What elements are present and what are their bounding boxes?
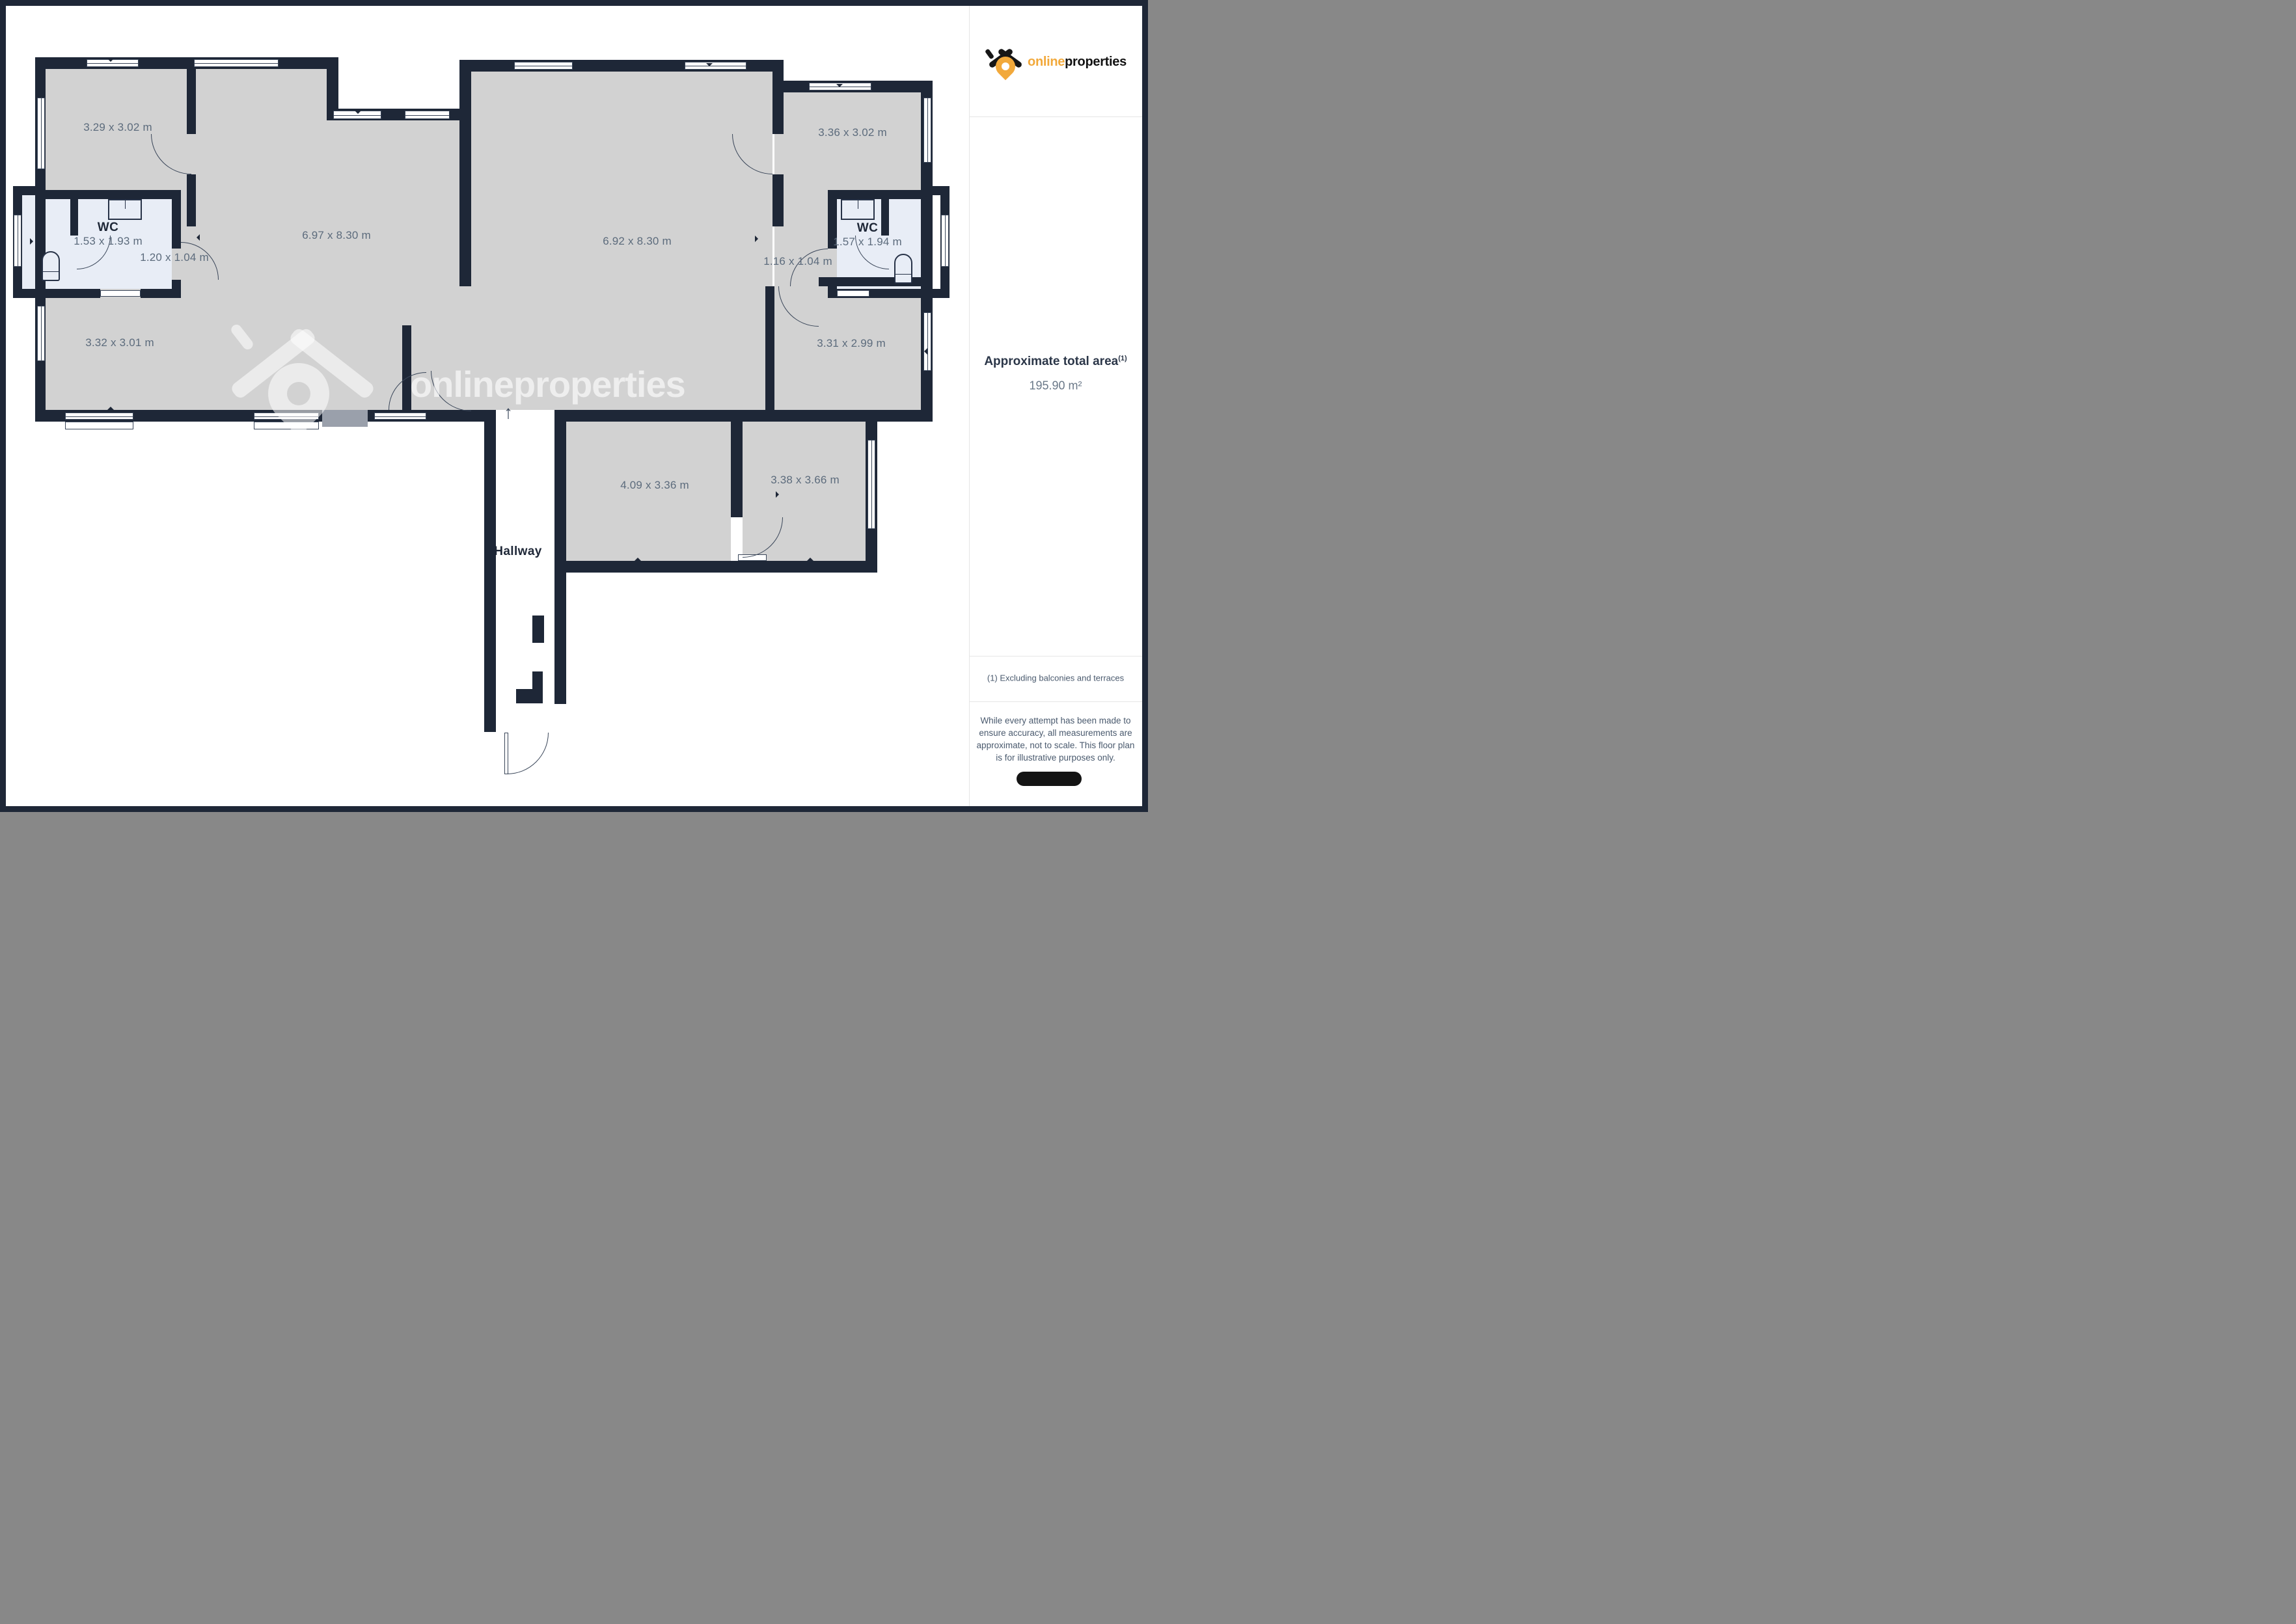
wall-segment <box>187 69 196 134</box>
room-label-bottom-right: 3.31 x 2.99 m <box>817 337 886 350</box>
room-label-bottom-center: 4.09 x 3.36 m <box>620 479 689 492</box>
total-area-title: Approximate total area(1) <box>984 355 1127 369</box>
redacted-brand-pill <box>1017 772 1082 786</box>
sidebar-divider <box>969 656 1142 656</box>
sidebar-divider-vertical <box>969 6 970 806</box>
dimension-arrow <box>776 491 779 498</box>
brand-logo-text: onlineproperties <box>1028 55 1127 70</box>
wall-segment <box>731 422 743 517</box>
window <box>868 440 875 529</box>
wall-segment <box>765 286 774 422</box>
room-label-living-right: 6.92 x 8.30 m <box>603 235 672 248</box>
dimension-arrow <box>107 59 114 62</box>
wall-segment <box>484 410 496 732</box>
dimension-arrow <box>924 195 927 202</box>
room-label-lobby-right: 1.16 x 1.04 m <box>763 255 832 268</box>
area-footnote: (1) Excluding balconies and terraces <box>987 673 1124 683</box>
room-label-hallway: Hallway <box>494 545 542 559</box>
door-arc <box>507 733 549 774</box>
toilet-icon <box>42 251 60 281</box>
door-threshold <box>100 290 141 297</box>
dimension-arrow <box>187 199 194 202</box>
window <box>685 62 746 70</box>
window <box>254 413 319 420</box>
window <box>37 306 45 361</box>
window <box>941 215 949 267</box>
wc-dims: 1.57 x 1.94 m <box>833 236 902 249</box>
brand-word-properties: properties <box>1065 55 1127 69</box>
window-sill <box>254 422 319 429</box>
dimension-arrow <box>836 84 843 87</box>
door-threshold <box>837 290 869 297</box>
wc-name: WC <box>74 221 143 235</box>
window <box>37 98 45 169</box>
brand-logo: onlineproperties <box>979 36 1133 88</box>
room-label-lobby-left: 1.20 x 1.04 m <box>140 251 209 264</box>
dimension-arrow <box>107 407 114 410</box>
floor-recess <box>327 120 471 410</box>
toilet-icon <box>894 254 912 284</box>
dimension-arrow <box>197 234 200 241</box>
wall-segment <box>13 289 35 298</box>
wall-segment <box>35 289 100 298</box>
window <box>374 413 426 420</box>
wall-segment <box>172 190 181 249</box>
window <box>194 59 279 67</box>
room-label-wc-right: WC 1.57 x 1.94 m <box>833 221 902 249</box>
entrance-arrow-icon: ↑ <box>504 402 513 423</box>
wall-segment <box>933 289 950 298</box>
porch-pillar <box>532 616 544 643</box>
window <box>514 62 573 70</box>
window <box>65 413 133 420</box>
wall-segment <box>554 561 877 573</box>
wc-name: WC <box>833 221 902 236</box>
wall-segment <box>819 277 933 286</box>
dimension-arrow <box>924 348 927 355</box>
window <box>405 111 450 119</box>
wall-segment <box>566 410 933 422</box>
window-sill <box>65 422 133 429</box>
sidebar-divider <box>969 116 1142 117</box>
window <box>923 98 931 163</box>
room-label-top-right: 3.36 x 3.02 m <box>818 126 887 139</box>
sidebar-divider <box>969 701 1142 702</box>
dimension-arrow <box>558 491 562 498</box>
wall-segment <box>772 92 784 134</box>
wall-segment <box>141 289 181 298</box>
sink-icon <box>108 199 142 220</box>
dimension-arrow <box>755 236 758 242</box>
wall-segment <box>828 190 933 199</box>
total-area-value: 195.90 m² <box>1029 379 1082 393</box>
dimension-arrow <box>355 111 361 114</box>
dimension-arrow <box>706 63 713 66</box>
room-label-top-left: 3.29 x 3.02 m <box>83 121 152 134</box>
wall-segment <box>35 57 338 69</box>
dimension-arrow <box>635 558 641 561</box>
wall-segment <box>772 174 784 226</box>
wc-dims: 1.53 x 1.93 m <box>74 235 143 248</box>
window <box>923 312 931 371</box>
room-label-living-left: 6.97 x 8.30 m <box>302 229 371 242</box>
sink-icon <box>841 199 875 220</box>
floorplan-page: ↑ onlineproperties 3.29 x 3.02 m 3.36 x … <box>0 0 1148 812</box>
room-label-bottom-left: 3.32 x 3.01 m <box>85 336 154 349</box>
room-label-bottom-center-right: 3.38 x 3.66 m <box>771 474 840 487</box>
dimension-arrow <box>807 558 813 561</box>
wall-segment <box>554 410 566 704</box>
room-label-wc-left: WC 1.53 x 1.93 m <box>74 221 143 248</box>
house-pin-logo-icon <box>986 41 1024 83</box>
brand-word-online: online <box>1028 55 1065 69</box>
porch-wall <box>516 689 543 703</box>
wall-segment <box>459 120 471 286</box>
chimney-breast <box>322 410 368 427</box>
wall-segment <box>35 190 181 199</box>
dimension-arrow <box>30 238 33 245</box>
disclaimer-text: While every attempt has been made to ens… <box>975 714 1136 765</box>
footnote-marker: (1) <box>1118 355 1127 362</box>
window <box>14 215 21 267</box>
